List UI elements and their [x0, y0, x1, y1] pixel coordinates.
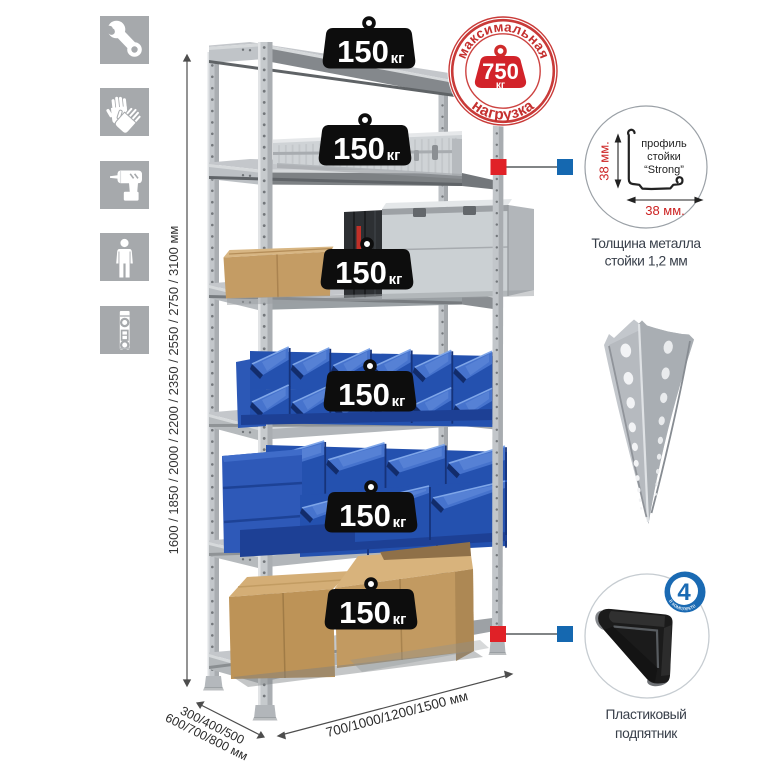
svg-text:профиль: профиль: [641, 138, 687, 150]
svg-text:стойки: стойки: [647, 151, 681, 163]
svg-text:Пластиковый: Пластиковый: [606, 707, 687, 722]
svg-text:кг: кг: [496, 80, 505, 91]
svg-text:подпятник: подпятник: [615, 726, 678, 741]
svg-text:стойки 1,2 мм: стойки 1,2 мм: [605, 254, 688, 269]
svg-text:4: 4: [677, 579, 691, 606]
svg-text:38 мм.: 38 мм.: [597, 141, 612, 181]
svg-text:38 мм.: 38 мм.: [645, 203, 685, 218]
svg-text:1600 / 1850 / 2000 / 2200 / 23: 1600 / 1850 / 2000 / 2200 / 2350 / 2550 …: [166, 226, 181, 555]
svg-text:Толщина металла: Толщина металла: [591, 236, 701, 251]
svg-text:“Strong”: “Strong”: [644, 164, 684, 176]
